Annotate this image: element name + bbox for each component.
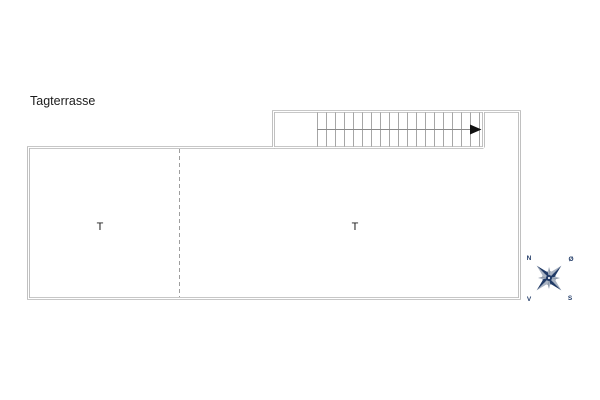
plan-outline-core [29, 112, 520, 299]
compass-label-west: V [527, 296, 532, 303]
compass-label-south: S [568, 295, 573, 302]
room-label-right: T [352, 221, 359, 233]
floor-plan-drawing [0, 0, 600, 400]
compass-rose: N Ø V S [519, 247, 579, 309]
compass-label-north: N [527, 255, 532, 262]
compass-star [534, 263, 563, 292]
compass-label-east: Ø [568, 256, 573, 263]
room-label-left: T [97, 221, 104, 233]
floor-plan-page: Tagterrasse T T [0, 0, 600, 400]
